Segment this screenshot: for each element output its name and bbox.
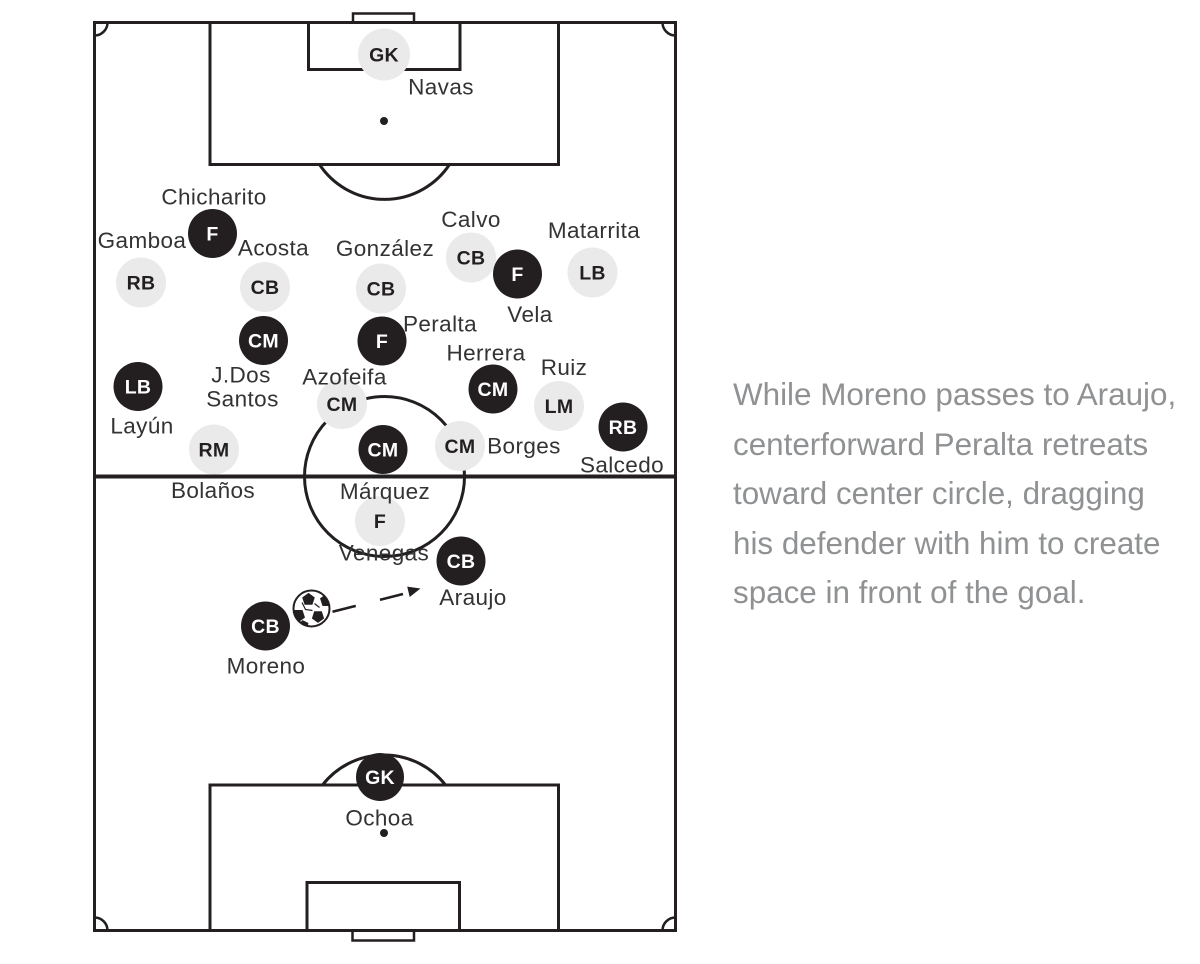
svg-text:Salcedo: Salcedo — [580, 453, 664, 478]
svg-text:Layún: Layún — [110, 414, 173, 439]
svg-text:Ochoa: Ochoa — [345, 806, 413, 831]
svg-text:GK: GK — [369, 44, 399, 66]
svg-text:Márquez: Márquez — [340, 479, 430, 504]
svg-text:CB: CB — [251, 277, 280, 299]
svg-text:RB: RB — [127, 272, 156, 294]
svg-text:F: F — [206, 223, 218, 245]
svg-text:RB: RB — [609, 417, 638, 439]
svg-text:Navas: Navas — [408, 75, 474, 100]
svg-text:LB: LB — [579, 262, 606, 284]
svg-text:CM: CM — [248, 330, 279, 352]
svg-text:Herrera: Herrera — [446, 341, 525, 366]
svg-text:Moreno: Moreno — [227, 654, 306, 679]
svg-text:GK: GK — [365, 767, 395, 789]
svg-text:Calvo: Calvo — [441, 207, 501, 232]
svg-text:J.Dos: J.Dos — [211, 363, 271, 388]
svg-text:Chicharito: Chicharito — [161, 185, 266, 210]
svg-text:CB: CB — [251, 616, 280, 638]
svg-text:LM: LM — [545, 396, 574, 418]
svg-text:Azofeifa: Azofeifa — [302, 365, 387, 390]
svg-text:LB: LB — [125, 376, 152, 398]
svg-text:Vela: Vela — [507, 302, 552, 327]
svg-text:CB: CB — [447, 551, 476, 573]
svg-text:CM: CM — [327, 394, 358, 416]
svg-text:Ruiz: Ruiz — [541, 355, 588, 380]
svg-text:Acosta: Acosta — [238, 236, 309, 261]
svg-text:Borges: Borges — [487, 434, 561, 459]
svg-text:F: F — [376, 331, 388, 353]
svg-text:Araujo: Araujo — [439, 585, 506, 610]
svg-text:González: González — [336, 236, 434, 261]
svg-text:CB: CB — [367, 278, 396, 300]
svg-text:Venegas: Venegas — [339, 541, 429, 566]
svg-text:CB: CB — [457, 247, 486, 269]
svg-text:CM: CM — [445, 436, 476, 458]
svg-text:F: F — [511, 264, 523, 286]
svg-text:CM: CM — [478, 379, 509, 401]
svg-text:RM: RM — [199, 439, 230, 461]
svg-text:F: F — [374, 511, 386, 533]
svg-text:Peralta: Peralta — [403, 312, 477, 337]
svg-text:Santos: Santos — [206, 387, 278, 412]
svg-text:Gamboa: Gamboa — [98, 228, 187, 253]
svg-text:CM: CM — [368, 439, 399, 461]
svg-text:Matarrita: Matarrita — [548, 218, 640, 243]
svg-text:Bolaños: Bolaños — [171, 478, 255, 503]
